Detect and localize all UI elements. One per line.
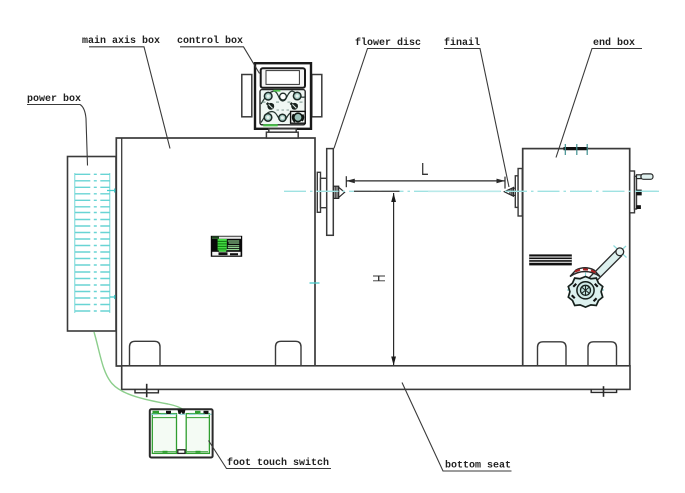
svg-text:H: H	[369, 275, 389, 282]
svg-text:foot touch switch: foot touch switch	[227, 457, 329, 469]
svg-text:main axis box: main axis box	[82, 35, 160, 47]
svg-text:power box: power box	[27, 93, 81, 105]
svg-text:control box: control box	[177, 35, 243, 47]
svg-text:bottom seat: bottom seat	[445, 460, 511, 472]
svg-text:L: L	[421, 159, 429, 179]
svg-text:finail: finail	[444, 37, 480, 49]
svg-text:flower disc: flower disc	[355, 37, 421, 49]
svg-text:end box: end box	[593, 37, 635, 49]
